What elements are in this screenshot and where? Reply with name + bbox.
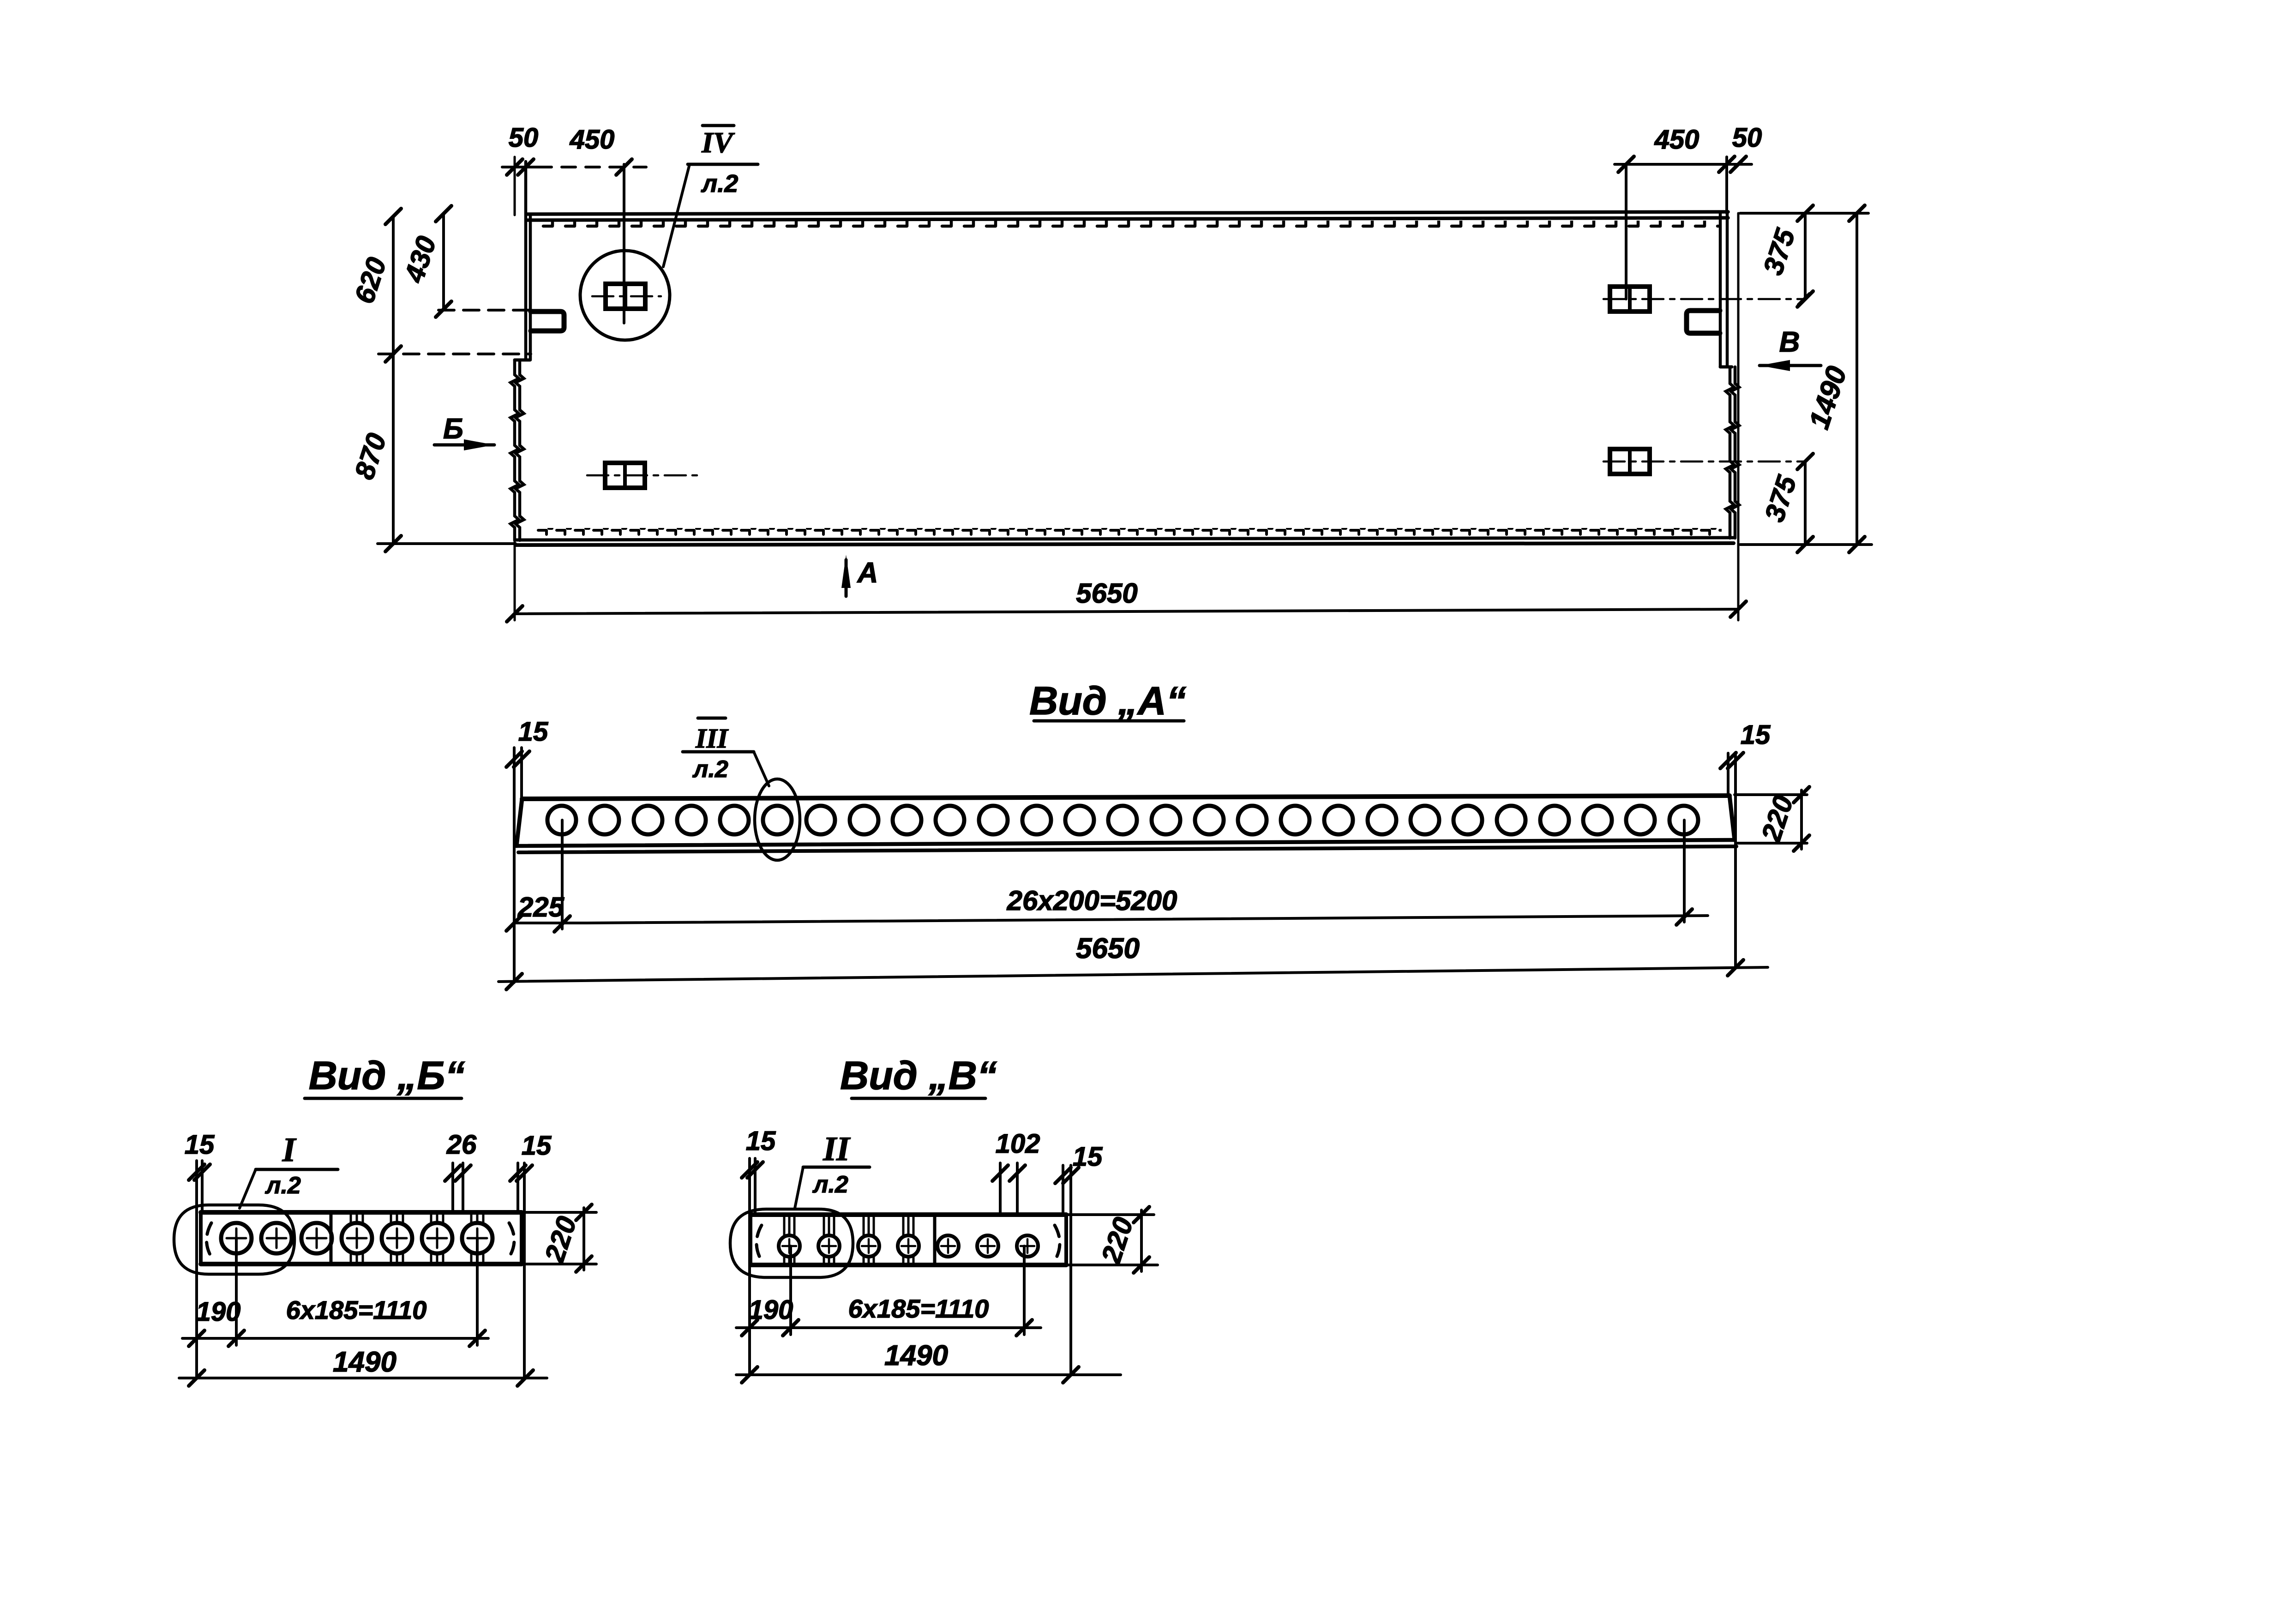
svg-text:II: II	[823, 1130, 851, 1168]
svg-text:л.2: л.2	[701, 170, 739, 198]
svg-text:Б: Б	[443, 413, 463, 445]
svg-text:А: А	[857, 557, 878, 589]
svg-text:Вид „А“: Вид „А“	[1029, 679, 1186, 723]
svg-text:190: 190	[749, 1295, 793, 1325]
svg-text:л.2: л.2	[812, 1171, 848, 1198]
svg-text:15: 15	[1073, 1142, 1103, 1172]
svg-text:л.2: л.2	[692, 756, 728, 783]
svg-text:220: 220	[1095, 1214, 1139, 1268]
svg-text:15: 15	[518, 717, 548, 747]
svg-text:190: 190	[196, 1297, 241, 1327]
svg-text:26: 26	[446, 1130, 477, 1160]
svg-text:50: 50	[1732, 123, 1762, 153]
svg-text:л.2: л.2	[264, 1172, 301, 1199]
svg-text:6х185=1110: 6х185=1110	[848, 1294, 989, 1323]
svg-text:6х185=1110: 6х185=1110	[286, 1295, 427, 1324]
svg-text:15: 15	[522, 1131, 552, 1161]
svg-text:15: 15	[746, 1126, 776, 1156]
svg-text:Вид „Б“: Вид „Б“	[309, 1054, 465, 1098]
svg-text:В: В	[1779, 326, 1800, 358]
svg-text:450: 450	[570, 125, 615, 155]
svg-text:1490: 1490	[1803, 362, 1853, 433]
svg-text:50: 50	[509, 123, 539, 153]
svg-text:I: I	[282, 1131, 297, 1169]
svg-text:375: 375	[1759, 471, 1802, 525]
svg-text:1490: 1490	[333, 1346, 396, 1378]
svg-text:220: 220	[539, 1213, 583, 1267]
svg-text:220: 220	[1755, 792, 1799, 846]
svg-text:102: 102	[996, 1129, 1040, 1159]
svg-text:450: 450	[1654, 125, 1699, 155]
svg-text:5650: 5650	[1076, 578, 1137, 609]
svg-text:15: 15	[1741, 720, 1771, 750]
svg-text:375: 375	[1757, 224, 1801, 278]
svg-text:III: III	[695, 723, 729, 754]
svg-text:620: 620	[348, 254, 392, 307]
svg-text:225: 225	[517, 892, 565, 923]
svg-text:IV: IV	[701, 126, 735, 159]
svg-text:1490: 1490	[884, 1340, 948, 1372]
svg-text:26х200=5200: 26х200=5200	[1007, 885, 1177, 916]
svg-text:5650: 5650	[1076, 933, 1140, 965]
svg-text:15: 15	[185, 1130, 215, 1160]
svg-text:870: 870	[348, 430, 392, 483]
svg-text:Вид „В“: Вид „В“	[840, 1054, 997, 1098]
svg-text:430: 430	[398, 233, 442, 287]
